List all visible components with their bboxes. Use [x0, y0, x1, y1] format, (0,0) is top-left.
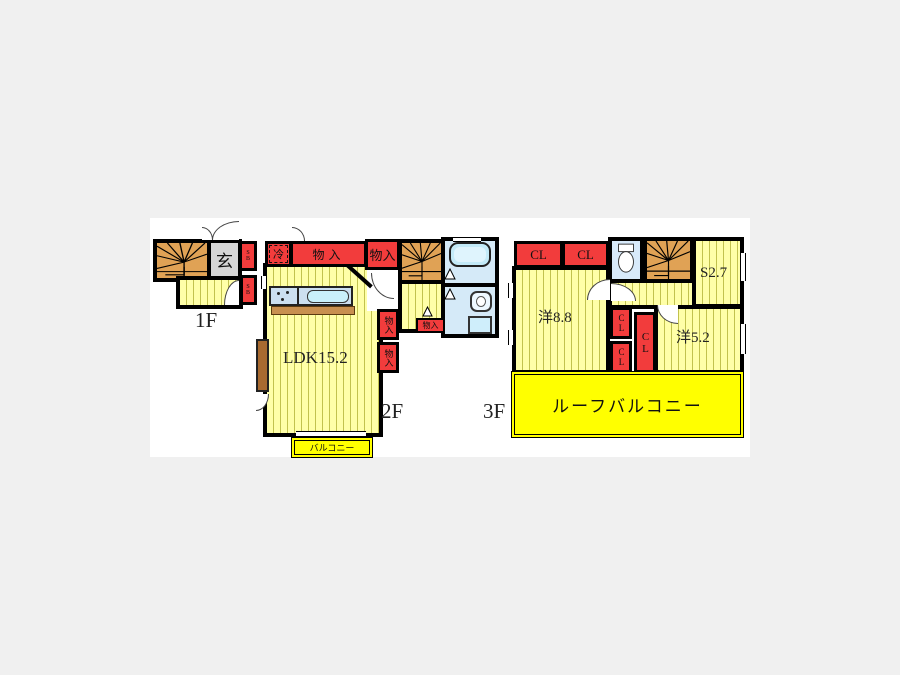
shoe-box-upper-label: SB	[245, 250, 251, 262]
stove-burner-dot	[281, 298, 284, 301]
floor2-label: 2F	[381, 399, 403, 424]
kitchen-counter	[269, 286, 353, 306]
closet-2f-mid-lower: 物入	[377, 342, 399, 373]
shoe-box-lower-label: SB	[245, 284, 251, 296]
stairs-3f	[643, 237, 694, 284]
fridge-label: 冷	[273, 246, 284, 262]
ldk-label: LDK15.2	[283, 348, 348, 368]
toilet-icon	[612, 241, 640, 279]
window-room88-left-1	[508, 283, 514, 298]
stairs-icon	[157, 243, 207, 278]
bay-counter	[256, 339, 269, 392]
closet-2f-top-label: 物入	[312, 246, 344, 263]
closet-3f-right-label: CL	[577, 247, 594, 263]
closet-2f-hall-label: 物入	[423, 320, 439, 331]
stove-burner-dot	[277, 292, 280, 295]
window-room52-right	[740, 324, 746, 354]
floor3-label: 3F	[483, 399, 505, 424]
closet-3f-center-upper: CL	[610, 307, 632, 339]
closet-3f-center-tall: CL	[634, 312, 656, 373]
closet-3f-center-lower-label: CL	[617, 347, 626, 367]
closet-2f-mid-lower-label: 物入	[384, 349, 393, 367]
closet-2f-upper-right: 物入	[365, 239, 400, 270]
fridge-space: 冷	[265, 241, 292, 267]
floor1-label: 1F	[195, 308, 217, 333]
closet-3f-center-lower: CL	[610, 341, 632, 373]
window-room88-left-2	[508, 330, 514, 345]
service-room-27-label: S2.7	[700, 265, 727, 282]
western-room-52-label: 洋5.2	[676, 326, 710, 347]
door-triangle-bath	[444, 268, 456, 280]
kitchen-sink	[307, 290, 349, 303]
stairs-2f	[398, 239, 446, 284]
stairs-icon	[647, 241, 690, 280]
balcony-2f-label: バルコニー	[310, 441, 355, 454]
window-2f-bottom	[296, 431, 366, 437]
washing-machine	[468, 316, 492, 334]
closet-2f-mid-upper-label: 物入	[384, 316, 393, 334]
closet-2f-upper-right-label: 物入	[369, 245, 395, 264]
closet-3f-center-tall-label: CL	[640, 331, 651, 355]
counter-ledge	[271, 306, 355, 315]
genkan-label: 玄	[216, 247, 233, 272]
closet-3f-left-label: CL	[530, 247, 547, 263]
balcony-2f: バルコニー	[291, 437, 373, 458]
closet-2f-mid-upper: 物入	[377, 309, 399, 340]
bathtub	[449, 242, 491, 267]
toilet-room	[608, 237, 644, 283]
western-room-88-label: 洋8.8	[538, 306, 572, 327]
closet-3f-left: CL	[514, 241, 563, 268]
roof-balcony: ルーフバルコニー	[511, 371, 744, 438]
closet-2f-top: 物入	[290, 241, 367, 267]
shoe-box-upper: SB	[239, 241, 257, 271]
window-s27-right	[740, 253, 746, 281]
roof-balcony-label: ルーフバルコニー	[552, 392, 703, 417]
closet-3f-center-upper-label: CL	[617, 313, 626, 333]
stairs-icon	[402, 243, 442, 280]
stove-burner-dot	[286, 291, 289, 294]
door-triangle-hall2f	[422, 306, 433, 317]
closet-2f-hall: 物入	[416, 318, 445, 333]
window-bath-top	[453, 237, 481, 242]
wash-basin	[470, 291, 492, 312]
door-triangle-wash	[444, 288, 456, 300]
genkan-room: 玄	[207, 239, 242, 280]
window-2f-left	[261, 276, 267, 289]
stove-divider	[297, 288, 299, 304]
floor-plan: 玄 SB SB 1F LDK15.2 冷 物入 物入	[0, 0, 900, 675]
closet-3f-right: CL	[562, 241, 609, 268]
